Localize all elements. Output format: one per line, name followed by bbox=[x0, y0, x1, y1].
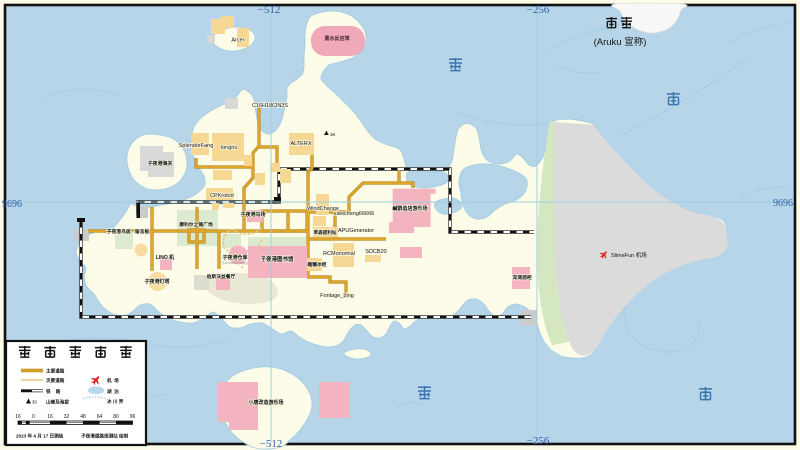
svg-text:铁 路: 铁 路 bbox=[46, 388, 61, 395]
svg-text:子夜港灯塔: 子夜港灯塔 bbox=[144, 278, 170, 285]
svg-text:RCMonomial: RCMonomial bbox=[323, 251, 355, 257]
svg-text:冰 川 界: 冰 川 界 bbox=[107, 398, 124, 405]
svg-text:80: 80 bbox=[113, 414, 119, 420]
svg-text:9696: 9696 bbox=[2, 199, 22, 210]
svg-text:LINO 机: LINO 机 bbox=[156, 254, 174, 261]
svg-text:longris: longris bbox=[221, 145, 237, 151]
svg-text:32: 32 bbox=[64, 414, 70, 420]
svg-text:CPKrobot: CPKrobot bbox=[210, 193, 234, 199]
svg-text:2023 年 4 月 17 日测绘: 2023 年 4 月 17 日测绘 bbox=[16, 433, 64, 440]
svg-text:0: 0 bbox=[32, 414, 35, 420]
svg-text:−256: −256 bbox=[527, 4, 550, 16]
svg-text:ALTERX: ALTERX bbox=[291, 141, 312, 147]
svg-text:9696: 9696 bbox=[773, 198, 793, 209]
svg-text:山峰及海拔: 山峰及海拔 bbox=[46, 399, 69, 406]
svg-text:−512: −512 bbox=[258, 4, 281, 16]
svg-text:(Aruku 宣称): (Aruku 宣称) bbox=[594, 36, 647, 48]
svg-text:(NomadicCamp): (NomadicCamp) bbox=[222, 261, 248, 265]
svg-text:子夜港图书馆: 子夜港图书馆 bbox=[260, 255, 294, 263]
svg-text:16: 16 bbox=[15, 414, 21, 420]
svg-text:子夜港鸟居 - 留言板: 子夜港鸟居 - 留言板 bbox=[107, 228, 150, 235]
svg-text:−512: −512 bbox=[260, 438, 283, 450]
svg-text:鹹鹊造店游乐场: 鹹鹊造店游乐场 bbox=[392, 205, 427, 212]
svg-text:次要道路: 次要道路 bbox=[46, 377, 65, 384]
svg-text:xiaocheng66666: xiaocheng66666 bbox=[334, 211, 374, 217]
svg-text:伯斯沃丝餐厅: 伯斯沃丝餐厅 bbox=[207, 273, 236, 280]
svg-text:深测酒吧: 深测酒吧 bbox=[512, 274, 531, 281]
svg-text:−256: −256 bbox=[527, 435, 550, 447]
svg-text:SplendorFang: SplendorFang bbox=[179, 143, 214, 149]
svg-text:Arcer: Arcer bbox=[231, 38, 244, 44]
svg-text:96: 96 bbox=[130, 414, 136, 420]
svg-text:趣糖冰柜: 趣糖冰柜 bbox=[306, 261, 326, 268]
svg-text:SDCB20: SDCB20 bbox=[365, 249, 386, 255]
svg-text:38: 38 bbox=[32, 400, 37, 405]
svg-text:机 场: 机 场 bbox=[107, 377, 119, 384]
svg-text:子夜港仓库: 子夜港仓库 bbox=[222, 254, 247, 261]
svg-text:小唐改造游乐场: 小唐改造游乐场 bbox=[248, 399, 283, 406]
svg-text:Fontage_Ling: Fontage_Ling bbox=[320, 293, 354, 299]
svg-text:湖 泊: 湖 泊 bbox=[107, 388, 119, 395]
svg-text:重水反应堆: 重水反应堆 bbox=[324, 35, 349, 42]
svg-text:主要道路: 主要道路 bbox=[46, 368, 65, 375]
svg-text:康利尔之锤广场: 康利尔之锤广场 bbox=[179, 221, 213, 228]
svg-text:SlimeFun 机场: SlimeFun 机场 bbox=[611, 251, 647, 259]
svg-text:48: 48 bbox=[80, 414, 86, 420]
svg-text:子夜港马场: 子夜港马场 bbox=[240, 211, 265, 218]
svg-text:64: 64 bbox=[97, 414, 103, 420]
svg-text:子夜港道路观测站 绘制: 子夜港道路观测站 绘制 bbox=[81, 433, 129, 440]
svg-text:38: 38 bbox=[330, 132, 336, 137]
svg-text:子夜港海关: 子夜港海关 bbox=[147, 160, 172, 167]
svg-text:草森提利站: 草森提利站 bbox=[314, 229, 337, 236]
svg-text:APUGenerator: APUGenerator bbox=[338, 228, 374, 234]
svg-text:16: 16 bbox=[47, 414, 53, 420]
svg-text:C16H18ClN3S: C16H18ClN3S bbox=[252, 103, 288, 109]
